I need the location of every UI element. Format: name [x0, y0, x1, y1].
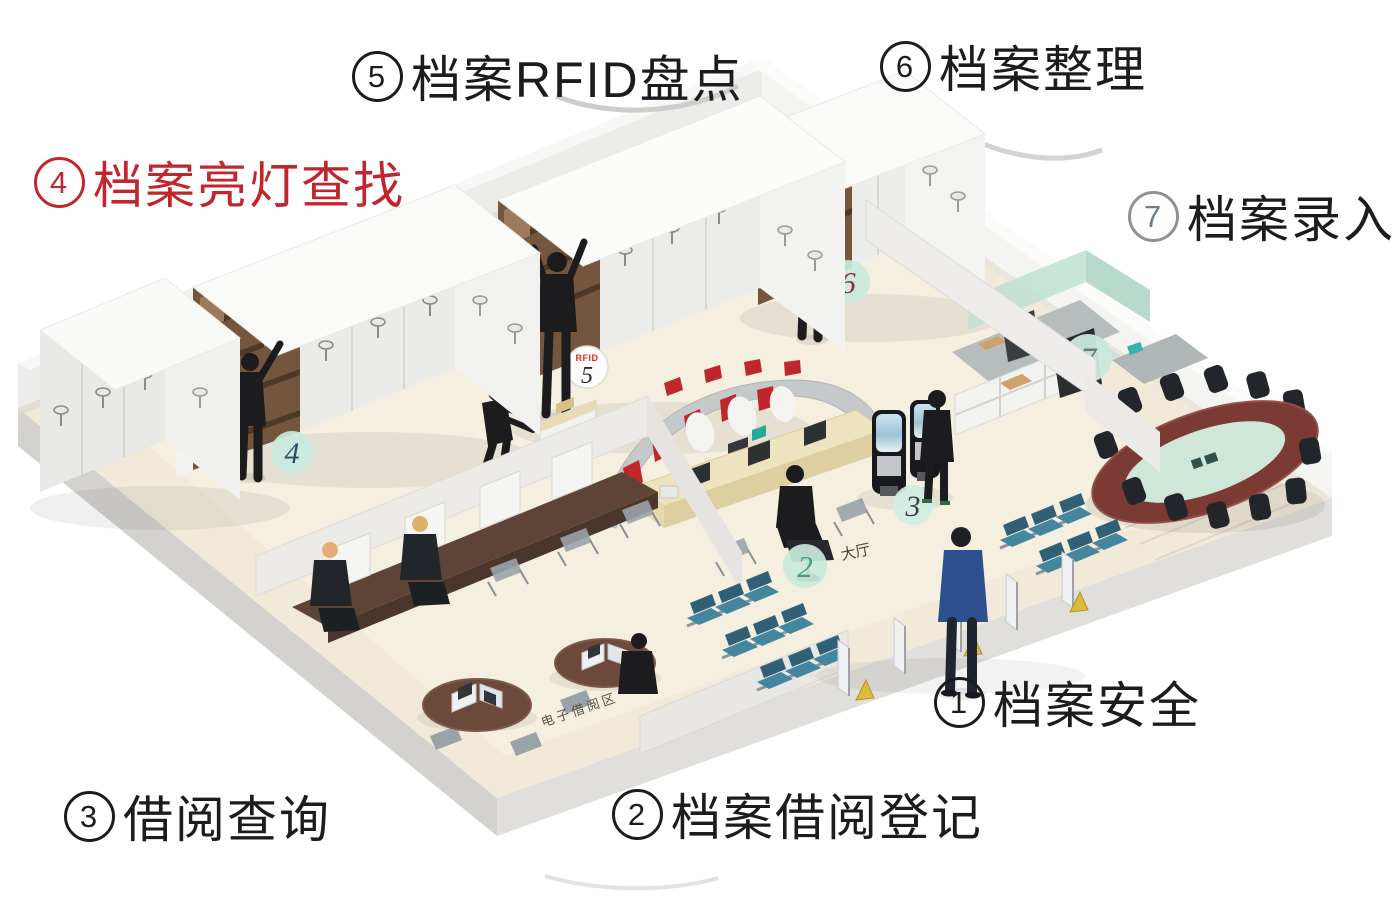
- zone-label-7-entry: 7 档案录入: [1128, 180, 1395, 252]
- zone-label-6-sorting: 6 档案整理: [880, 30, 1147, 102]
- zone-label-2-number: 2: [612, 789, 663, 840]
- floor-marker-4: 4: [271, 431, 313, 473]
- zone-label-5-text: 档案RFID盘点: [411, 40, 744, 112]
- zone-label-1-number: 1: [934, 677, 985, 728]
- zone-label-1-text: 档案安全: [993, 666, 1201, 738]
- svg-text:RFID: RFID: [576, 353, 599, 363]
- svg-text:4: 4: [285, 437, 300, 470]
- zone-label-1-security: 1 档案安全: [934, 666, 1201, 738]
- zone-label-6-number: 6: [880, 41, 931, 92]
- zone-label-3-number: 3: [64, 791, 115, 842]
- zone-label-4-number: 4: [34, 157, 85, 208]
- zone-label-6-text: 档案整理: [939, 30, 1147, 102]
- svg-text:5: 5: [581, 363, 593, 389]
- zone-label-7-number: 7: [1128, 191, 1179, 242]
- floor-marker-5-rfid: RFID 5: [566, 346, 608, 389]
- floor-marker-2: 2: [783, 544, 827, 588]
- isometric-scene: 6 7: [0, 0, 1400, 897]
- archive-room-diagram: 6 7: [0, 0, 1400, 897]
- zone-label-2-borrow-registration: 2 档案借阅登记: [612, 778, 983, 850]
- zone-label-5-number: 5: [352, 51, 403, 102]
- zone-label-2-text: 档案借阅登记: [671, 778, 983, 850]
- zone-label-4-light-search: 4 档案亮灯查找: [34, 146, 405, 218]
- zone-label-4-text: 档案亮灯查找: [93, 146, 405, 218]
- svg-text:2: 2: [797, 549, 813, 584]
- zone-label-7-text: 档案录入: [1187, 180, 1395, 252]
- zone-label-5-rfid-inventory: 5 档案RFID盘点: [352, 40, 744, 112]
- svg-text:3: 3: [905, 490, 921, 523]
- zone-label-3-text: 借阅查询: [123, 780, 331, 852]
- zone-label-3-borrow-query: 3 借阅查询: [64, 780, 331, 852]
